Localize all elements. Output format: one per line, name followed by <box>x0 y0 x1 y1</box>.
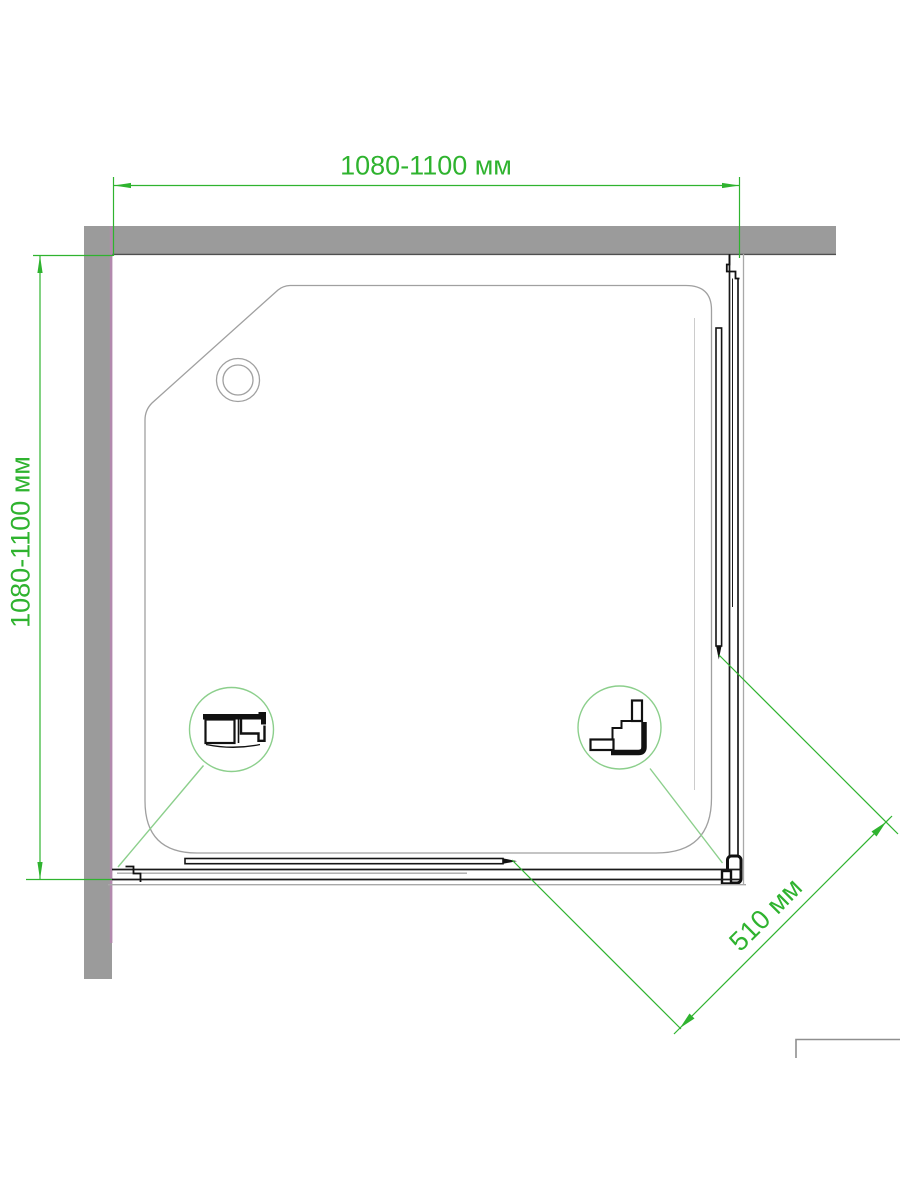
bottom-rail-lines <box>108 870 746 885</box>
adjacent-view-corner <box>796 1040 900 1059</box>
rail-profile-section <box>203 712 266 747</box>
width-dimension-label: 1080-1100 мм <box>340 153 512 180</box>
top-wall <box>84 226 836 254</box>
bottom-sliding-door <box>185 858 517 863</box>
drain <box>217 359 260 402</box>
left-wall <box>84 226 112 979</box>
detail-circle-left <box>118 688 274 868</box>
right-sliding-door <box>716 328 722 660</box>
corner-profile-section <box>591 701 645 753</box>
wall-profile-strip <box>110 226 113 943</box>
technical-drawing: 1080-1100 мм 1080-1100 мм 510 мм <box>0 0 900 1200</box>
leader-line-left <box>118 766 204 868</box>
right-panel-lines <box>730 254 744 885</box>
dimension-diagonal <box>512 655 898 1034</box>
height-dimension-label: 1080-1100 мм <box>8 456 35 628</box>
